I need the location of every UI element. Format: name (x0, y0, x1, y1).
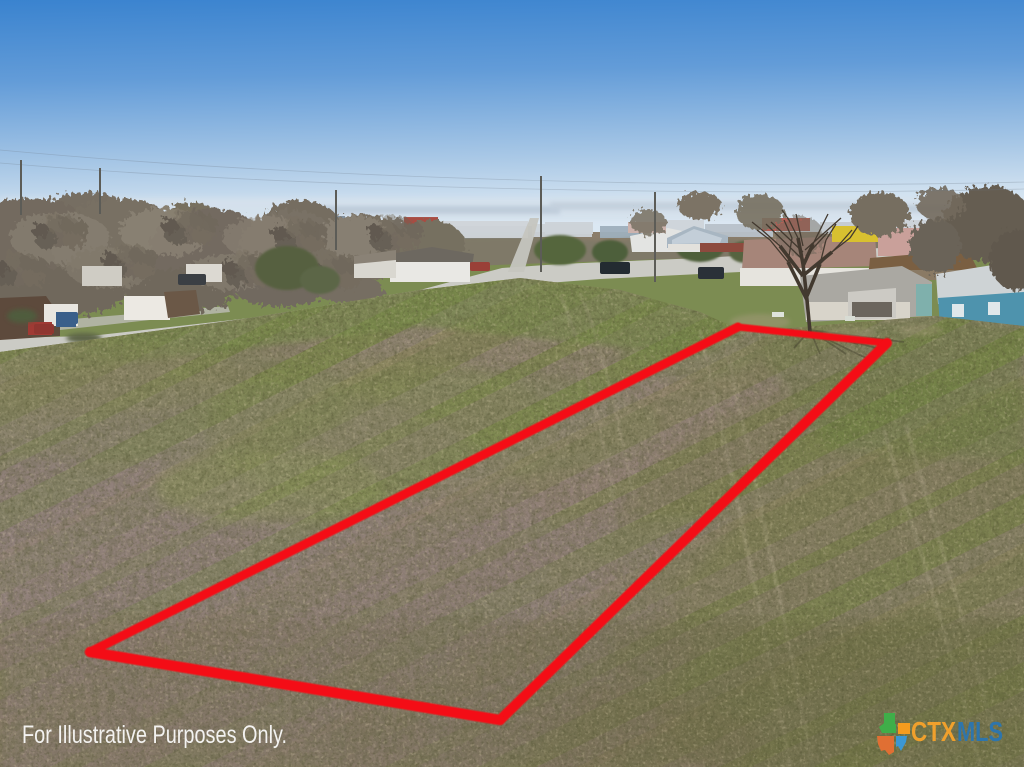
svg-text:For Illustrative Purposes Only: For Illustrative Purposes Only. (22, 721, 287, 749)
svg-text:MLS: MLS (957, 716, 1003, 747)
svg-text:CTX: CTX (911, 716, 956, 747)
